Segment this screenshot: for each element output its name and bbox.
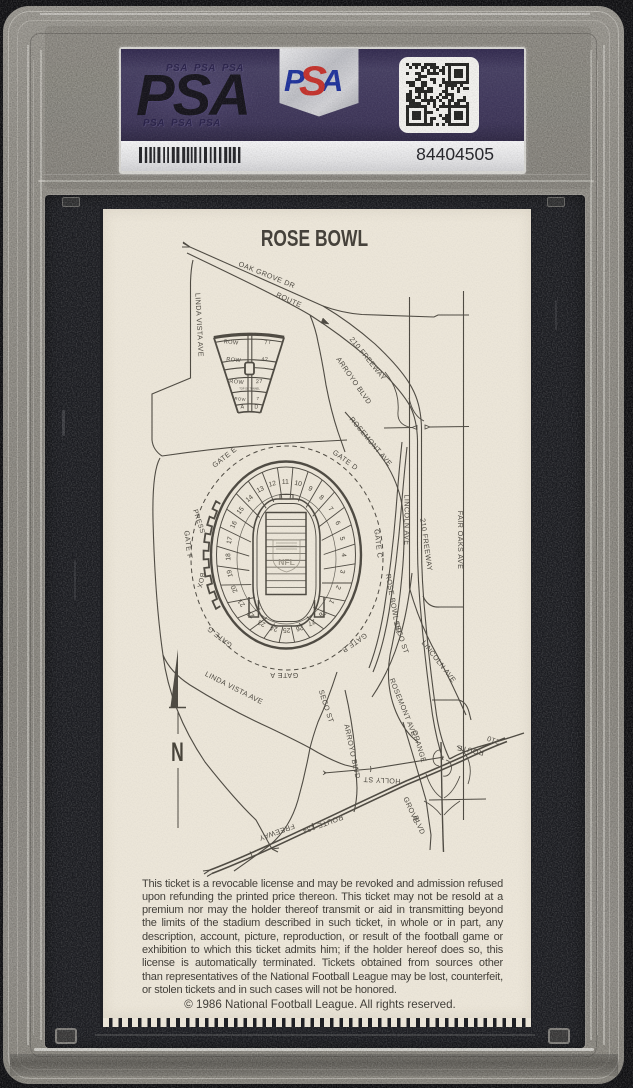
svg-text:14: 14: [245, 494, 255, 504]
svg-text:GATE A: GATE A: [270, 671, 298, 680]
svg-text:7: 7: [326, 506, 334, 514]
svg-text:GATE C: GATE C: [372, 529, 384, 559]
svg-text:ROUTE: ROUTE: [275, 290, 303, 309]
svg-text:4: 4: [340, 553, 347, 557]
svg-text:D: D: [254, 405, 258, 411]
svg-text:GATE G: GATE G: [205, 624, 234, 649]
svg-text:8: 8: [318, 494, 325, 502]
svg-text:BOX: BOX: [195, 572, 205, 589]
svg-text:3: 3: [338, 569, 346, 574]
svg-text:210 FREEWAY: 210 FREEWAY: [418, 518, 434, 572]
svg-text:10: 10: [294, 480, 303, 488]
svg-text:BLVD: BLVD: [411, 814, 427, 836]
svg-text:42: 42: [261, 357, 268, 363]
svg-text:ORANGE: ORANGE: [410, 729, 428, 764]
svg-text:LINDA VISTA AVE: LINDA VISTA AVE: [193, 293, 205, 357]
svg-text:13: 13: [256, 485, 266, 495]
svg-text:27: 27: [256, 379, 263, 385]
svg-text:A: A: [241, 405, 245, 411]
svg-text:HOLLY ST: HOLLY ST: [363, 775, 401, 786]
svg-text:ROSEMONT AVE: ROSEMONT AVE: [388, 677, 419, 738]
svg-text:ROUTE 134: ROUTE 134: [301, 813, 344, 836]
svg-text:77: 77: [264, 340, 271, 346]
svg-text:7: 7: [257, 396, 260, 401]
svg-text:NFL: NFL: [278, 557, 295, 567]
svg-text:TOP OF TUNNEL: TOP OF TUNNEL: [239, 387, 260, 391]
svg-text:27: 27: [306, 617, 316, 627]
svg-text:N: N: [171, 737, 184, 767]
svg-text:6: 6: [333, 520, 341, 527]
svg-text:GATE F: GATE F: [182, 530, 194, 559]
svg-text:15: 15: [236, 505, 246, 515]
svg-text:ROW: ROW: [223, 339, 239, 347]
svg-text:17: 17: [226, 536, 234, 545]
svg-text:ROW: ROW: [229, 379, 245, 387]
svg-text:12: 12: [268, 480, 277, 489]
svg-text:9: 9: [307, 485, 314, 493]
svg-text:GATE B: GATE B: [340, 631, 369, 655]
svg-text:FAIR OAKS AVE: FAIR OAKS AVE: [456, 511, 465, 570]
svg-text:SECO ST: SECO ST: [392, 619, 411, 655]
svg-text:S: S: [299, 57, 327, 104]
svg-text:25: 25: [283, 626, 291, 633]
svg-text:19: 19: [226, 569, 235, 578]
svg-text:2: 2: [334, 584, 342, 591]
svg-text:OAK GROVE DR: OAK GROVE DR: [237, 259, 296, 290]
svg-text:ROW: ROW: [234, 396, 246, 402]
svg-text:ROW: ROW: [226, 357, 242, 365]
svg-text:11: 11: [282, 479, 289, 486]
svg-text:LINCOLN AVE: LINCOLN AVE: [403, 494, 412, 545]
svg-text:16: 16: [229, 520, 239, 530]
svg-text:ROUTE: ROUTE: [456, 743, 484, 757]
svg-text:18: 18: [225, 553, 232, 561]
svg-text:LINDA VISTA AVE: LINDA VISTA AVE: [204, 669, 265, 706]
svg-text:5: 5: [338, 536, 346, 542]
